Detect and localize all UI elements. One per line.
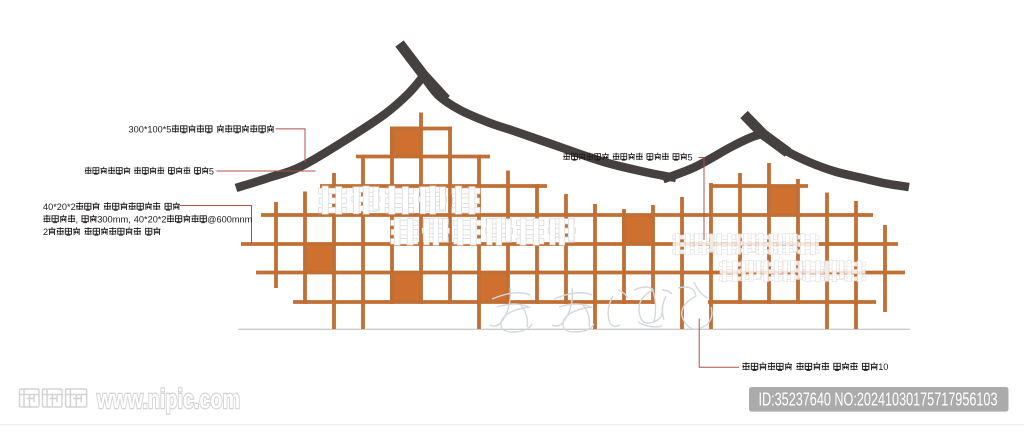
svg-text:40*20*2: 40*20*2 bbox=[134, 215, 167, 226]
svg-text:www.nipic.com: www.nipic.com bbox=[96, 384, 240, 414]
svg-text:@600mnm: @600mnm bbox=[207, 215, 252, 226]
svg-text:300mm,: 300mm, bbox=[97, 215, 131, 226]
svg-text:ID:35237640 NO:202410301757179: ID:35237640 NO:20241030175717956103 bbox=[759, 388, 998, 409]
svg-text:2: 2 bbox=[43, 227, 48, 238]
svg-text:,: , bbox=[76, 215, 79, 226]
svg-text:300*100*5: 300*100*5 bbox=[129, 125, 172, 136]
svg-text:10: 10 bbox=[878, 362, 888, 373]
svg-text:5: 5 bbox=[209, 167, 214, 178]
svg-text:5: 5 bbox=[688, 153, 693, 164]
svg-text:40*20*2: 40*20*2 bbox=[43, 202, 76, 213]
